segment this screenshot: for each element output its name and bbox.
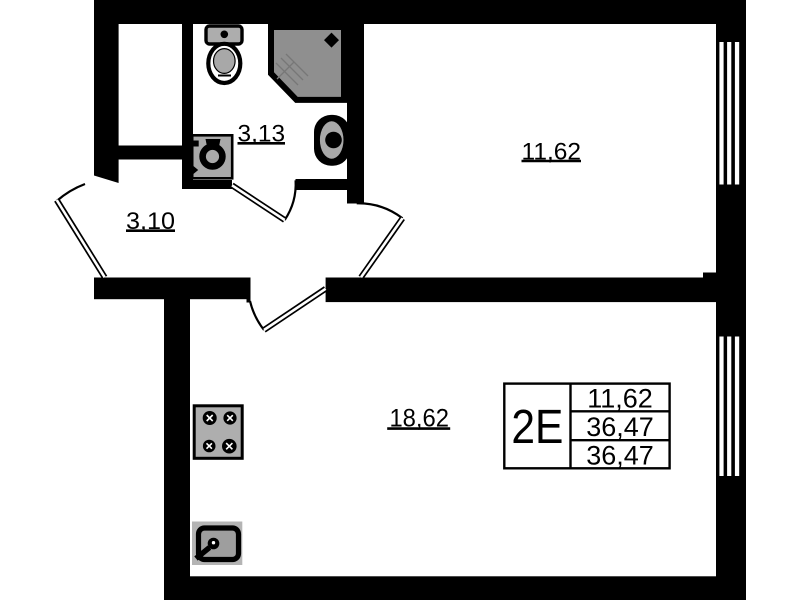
svg-text:36,47: 36,47 [586,441,654,471]
svg-text:11,62: 11,62 [587,383,653,413]
svg-text:36,47: 36,47 [586,412,654,442]
svg-text:2E: 2E [511,401,563,454]
